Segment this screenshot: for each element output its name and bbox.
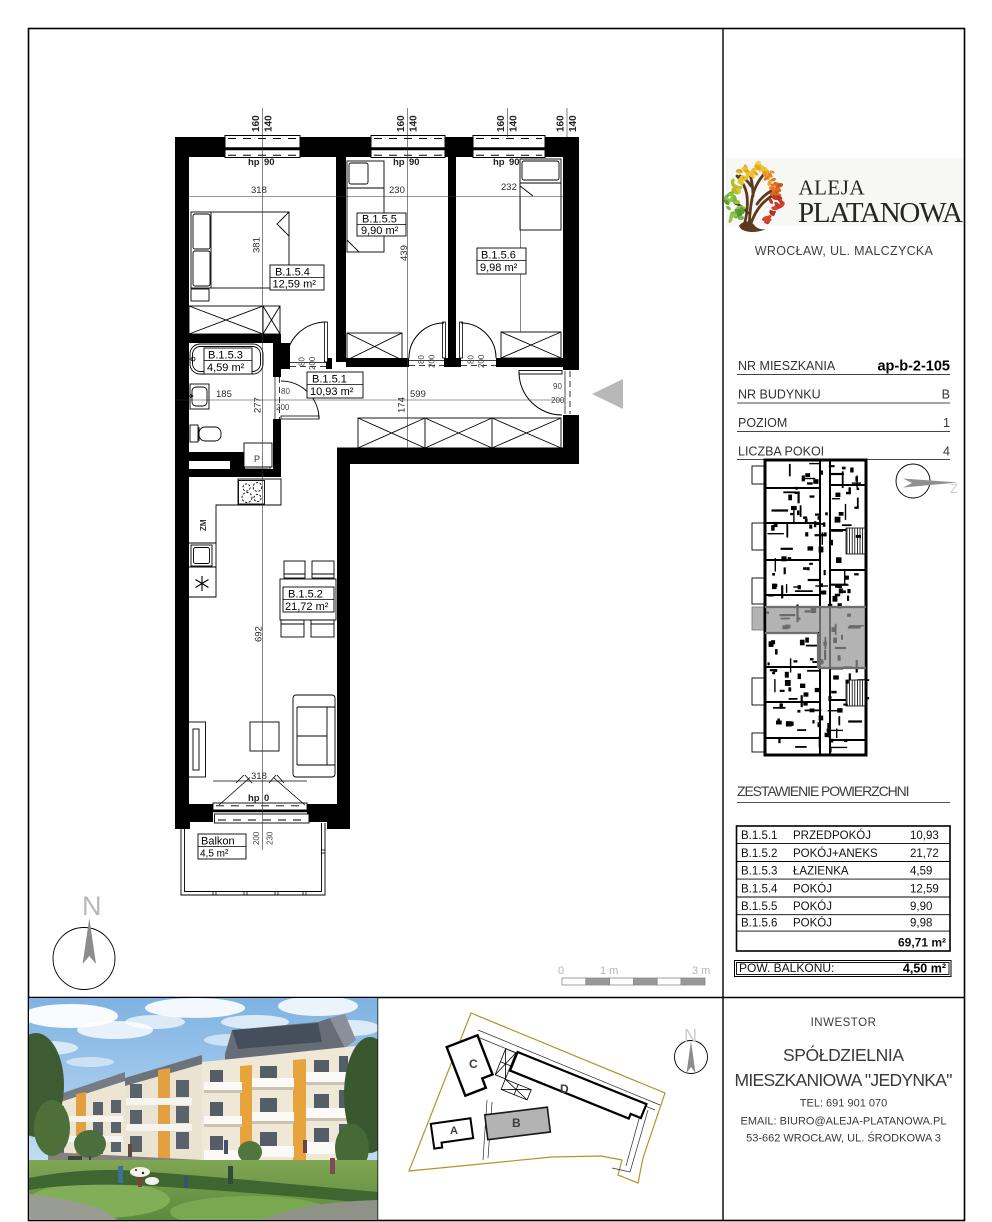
svg-text:140: 140 [568,115,579,132]
svg-text:0: 0 [264,793,269,804]
svg-text:PLATANOWA: PLATANOWA [798,197,963,229]
svg-text:318: 318 [251,185,267,196]
svg-text:90: 90 [553,382,562,391]
svg-text:A: A [450,1125,458,1137]
svg-text:0: 0 [558,965,564,977]
svg-text:140: 140 [509,115,520,132]
svg-text:POZIOM: POZIOM [738,416,787,430]
svg-text:MIESZKANIOWA "JEDYNKA": MIESZKANIOWA "JEDYNKA" [735,1070,953,1090]
svg-text:381: 381 [252,237,263,253]
svg-text:9,90: 9,90 [910,901,932,913]
svg-text:12,59: 12,59 [910,884,939,896]
svg-text:B.1.5.3: B.1.5.3 [741,866,777,878]
svg-text:80: 80 [298,357,307,366]
svg-text:hp: hp [493,157,505,168]
svg-text:Z: Z [950,481,958,496]
svg-text:230: 230 [389,185,405,196]
svg-text:3 m: 3 m [692,965,710,977]
svg-text:4,50 m²: 4,50 m² [903,962,946,976]
svg-text:C: C [469,1057,478,1071]
svg-text:B.1.5.3: B.1.5.3 [208,350,243,362]
svg-text:69,71 m²: 69,71 m² [898,936,946,950]
svg-text:ZM: ZM [199,519,208,531]
svg-text:N: N [684,1026,697,1046]
svg-text:90: 90 [264,157,275,168]
svg-text:4,59: 4,59 [910,866,932,878]
svg-text:160: 160 [251,115,262,132]
svg-text:90: 90 [509,157,520,168]
svg-text:ALEJA: ALEJA [799,176,866,200]
svg-text:4,59 m²: 4,59 m² [207,362,245,374]
svg-text:160: 160 [496,115,507,132]
svg-text:B.1.5.4: B.1.5.4 [275,267,310,279]
svg-text:4,5 m²: 4,5 m² [200,849,229,860]
svg-text:POKÓJ: POKÓJ [793,900,832,913]
svg-text:1: 1 [943,416,950,430]
svg-text:SPÓŁDZIELNIA: SPÓŁDZIELNIA [783,1044,904,1065]
svg-text:200: 200 [428,354,437,368]
svg-text:hp: hp [248,793,260,804]
svg-text:200: 200 [551,396,565,405]
svg-text:10,93: 10,93 [910,830,939,842]
svg-text:80: 80 [417,355,426,364]
svg-text:Balkon: Balkon [201,836,235,848]
svg-text:200: 200 [276,403,290,412]
svg-text:EMAIL: BIURO@ALEJA-PLATANOWA.P: EMAIL: BIURO@ALEJA-PLATANOWA.PL [741,1116,947,1128]
svg-text:B.1.5.4: B.1.5.4 [741,884,778,896]
svg-text:B.1.5.2: B.1.5.2 [288,589,323,601]
svg-text:NR BUDYNKU: NR BUDYNKU [738,388,821,402]
svg-text:90: 90 [409,157,420,168]
svg-text:PRZEDPOKÓJ: PRZEDPOKÓJ [793,829,871,842]
svg-text:LICZBA POKOI: LICZBA POKOI [738,445,824,459]
svg-text:439: 439 [399,245,410,261]
svg-text:POKÓJ: POKÓJ [793,883,832,896]
svg-text:N: N [82,891,102,921]
svg-text:D: D [560,1082,569,1096]
svg-text:80: 80 [467,355,476,364]
svg-text:140: 140 [409,115,420,132]
svg-text:INWESTOR: INWESTOR [811,1017,877,1029]
svg-text:230: 230 [266,831,275,845]
svg-text:9,90 m²: 9,90 m² [361,225,399,237]
svg-text:B.1.5.6: B.1.5.6 [741,918,777,930]
svg-text:ZESTAWIENIE POWIERZCHNI: ZESTAWIENIE POWIERZCHNI [737,783,910,799]
svg-text:B.1.5.5: B.1.5.5 [362,214,397,226]
svg-text:ap-b-2-105: ap-b-2-105 [877,359,950,375]
svg-text:160: 160 [556,115,567,132]
svg-text:hp: hp [248,157,260,168]
svg-text:9,98 m²: 9,98 m² [480,262,518,274]
svg-text:POKÓJ+ANEKS: POKÓJ+ANEKS [793,847,878,860]
svg-text:692: 692 [254,626,265,642]
svg-text:B.1.5.1: B.1.5.1 [312,374,347,386]
svg-text:232: 232 [501,182,517,193]
svg-text:POKÓJ: POKÓJ [793,917,832,930]
svg-text:hp: hp [393,157,405,168]
svg-text:NR MIESZKANIA: NR MIESZKANIA [738,359,836,373]
svg-text:80: 80 [281,387,290,396]
svg-text:599: 599 [410,389,426,400]
svg-text:53-662 WROCŁAW, UL. ŚRODKOWA 3: 53-662 WROCŁAW, UL. ŚRODKOWA 3 [746,1132,941,1145]
svg-text:P: P [254,454,260,464]
svg-text:B: B [512,1116,521,1130]
svg-text:B: B [942,388,950,402]
svg-text:9,98: 9,98 [910,918,932,930]
svg-text:B.1.5.1: B.1.5.1 [741,830,777,842]
svg-text:21,72 m²: 21,72 m² [285,601,329,613]
svg-text:TEL: 691 901 070: TEL: 691 901 070 [800,1098,887,1110]
svg-text:10,93 m²: 10,93 m² [310,386,354,398]
svg-text:ŁAZIENKA: ŁAZIENKA [793,866,849,878]
svg-text:12,59 m²: 12,59 m² [273,279,317,291]
svg-text:4: 4 [943,445,950,459]
svg-text:B.1.5.5: B.1.5.5 [741,901,777,913]
svg-text:318: 318 [251,771,267,782]
svg-text:200: 200 [252,831,261,845]
svg-text:200: 200 [477,354,486,368]
svg-text:277: 277 [253,397,264,413]
svg-text:B.1.5.6: B.1.5.6 [481,250,516,262]
svg-text:B.1.5.2: B.1.5.2 [741,848,777,860]
svg-text:WROCŁAW, UL. MALCZYCKA: WROCŁAW, UL. MALCZYCKA [755,244,934,258]
svg-text:160: 160 [396,115,407,132]
svg-text:200: 200 [308,356,317,370]
svg-text:POW. BALKONU:: POW. BALKONU: [739,961,834,975]
svg-text:185: 185 [216,389,232,400]
svg-text:21,72: 21,72 [910,848,939,860]
svg-text:174: 174 [397,397,408,413]
svg-text:140: 140 [264,115,275,132]
svg-text:1 m: 1 m [600,965,618,977]
